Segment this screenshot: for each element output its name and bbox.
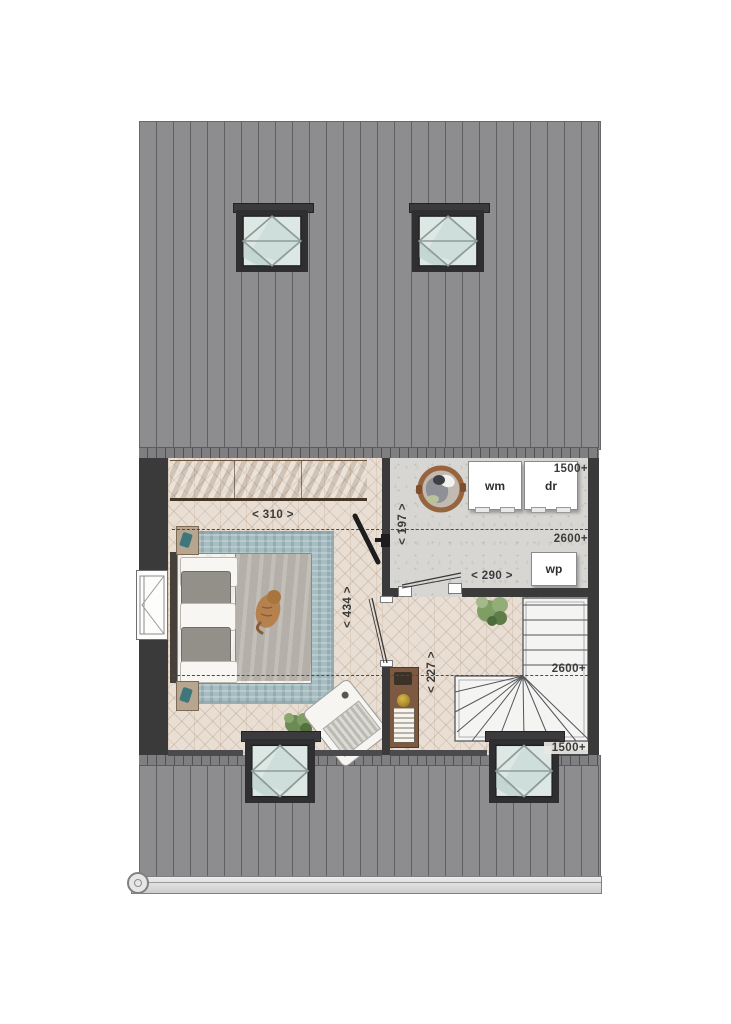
dimension-label-290: < 290 > bbox=[466, 570, 518, 582]
wall-eave-edge bbox=[168, 750, 243, 756]
floor-plan: wm dr wp bbox=[0, 0, 731, 1024]
skylight-window bbox=[236, 210, 308, 272]
wardrobe-divider bbox=[234, 461, 235, 498]
laundry-basket-icon bbox=[415, 463, 467, 515]
bedroom-door-leaf bbox=[364, 595, 390, 667]
wall-eave-edge bbox=[390, 750, 487, 756]
heat-pump-label: wp bbox=[546, 562, 563, 576]
laundry-door-leaf bbox=[396, 563, 466, 591]
wardrobe bbox=[170, 460, 367, 501]
wall-right bbox=[588, 458, 599, 755]
dimension-label-197: < 197 > bbox=[397, 503, 409, 545]
height-label-1500-bottom: 1500+ bbox=[544, 742, 588, 754]
gutter bbox=[131, 876, 602, 894]
appliance-foot bbox=[556, 507, 571, 513]
chair-pillow bbox=[340, 690, 350, 700]
heat-pump-box: wp bbox=[531, 552, 577, 586]
nightstand-decor bbox=[179, 687, 193, 703]
height-contour-line bbox=[172, 675, 588, 676]
dimension-label-434: < 434 > bbox=[342, 586, 354, 628]
skylight-glass-icon bbox=[245, 739, 315, 803]
appliance-foot bbox=[475, 507, 490, 513]
dimension-label-227: < 227 > bbox=[426, 651, 438, 693]
bed-headboard bbox=[170, 552, 177, 683]
pillow bbox=[180, 661, 238, 683]
washing-machine-box: wm bbox=[468, 461, 522, 510]
speaker-icon bbox=[397, 694, 410, 707]
bedroom-window bbox=[136, 570, 168, 640]
wardrobe-divider bbox=[301, 461, 302, 498]
height-label-1500-top: 1500+ bbox=[548, 463, 588, 475]
nightstand-decor bbox=[179, 532, 193, 548]
roof-top bbox=[139, 121, 601, 450]
sideboard-books bbox=[393, 707, 415, 743]
wall-laundry-front bbox=[462, 588, 588, 597]
nightstand bbox=[176, 681, 199, 711]
sideboard-item bbox=[394, 672, 412, 685]
gutter-line bbox=[132, 882, 601, 883]
height-label-2600-laundry: 2600+ bbox=[548, 533, 588, 545]
dryer-label: dr bbox=[545, 479, 557, 493]
cat-icon bbox=[248, 585, 288, 635]
skylight-glass-icon bbox=[412, 210, 484, 272]
skylight-window bbox=[245, 739, 315, 803]
tv-bracket-icon bbox=[345, 512, 393, 570]
wall-bedroom-hall bbox=[382, 663, 390, 755]
appliance-foot bbox=[531, 507, 546, 513]
gutter-end-cap bbox=[127, 872, 149, 894]
appliance-foot bbox=[500, 507, 515, 513]
wall-eave-edge bbox=[315, 750, 382, 756]
skylight-window bbox=[412, 210, 484, 272]
dimension-label-310: < 310 > bbox=[247, 509, 299, 521]
skylight-glass-icon bbox=[236, 210, 308, 272]
washing-machine-label: wm bbox=[485, 479, 505, 493]
nightstand bbox=[176, 526, 199, 555]
sideboard bbox=[389, 667, 419, 748]
height-label-2600-stair: 2600+ bbox=[546, 663, 586, 675]
